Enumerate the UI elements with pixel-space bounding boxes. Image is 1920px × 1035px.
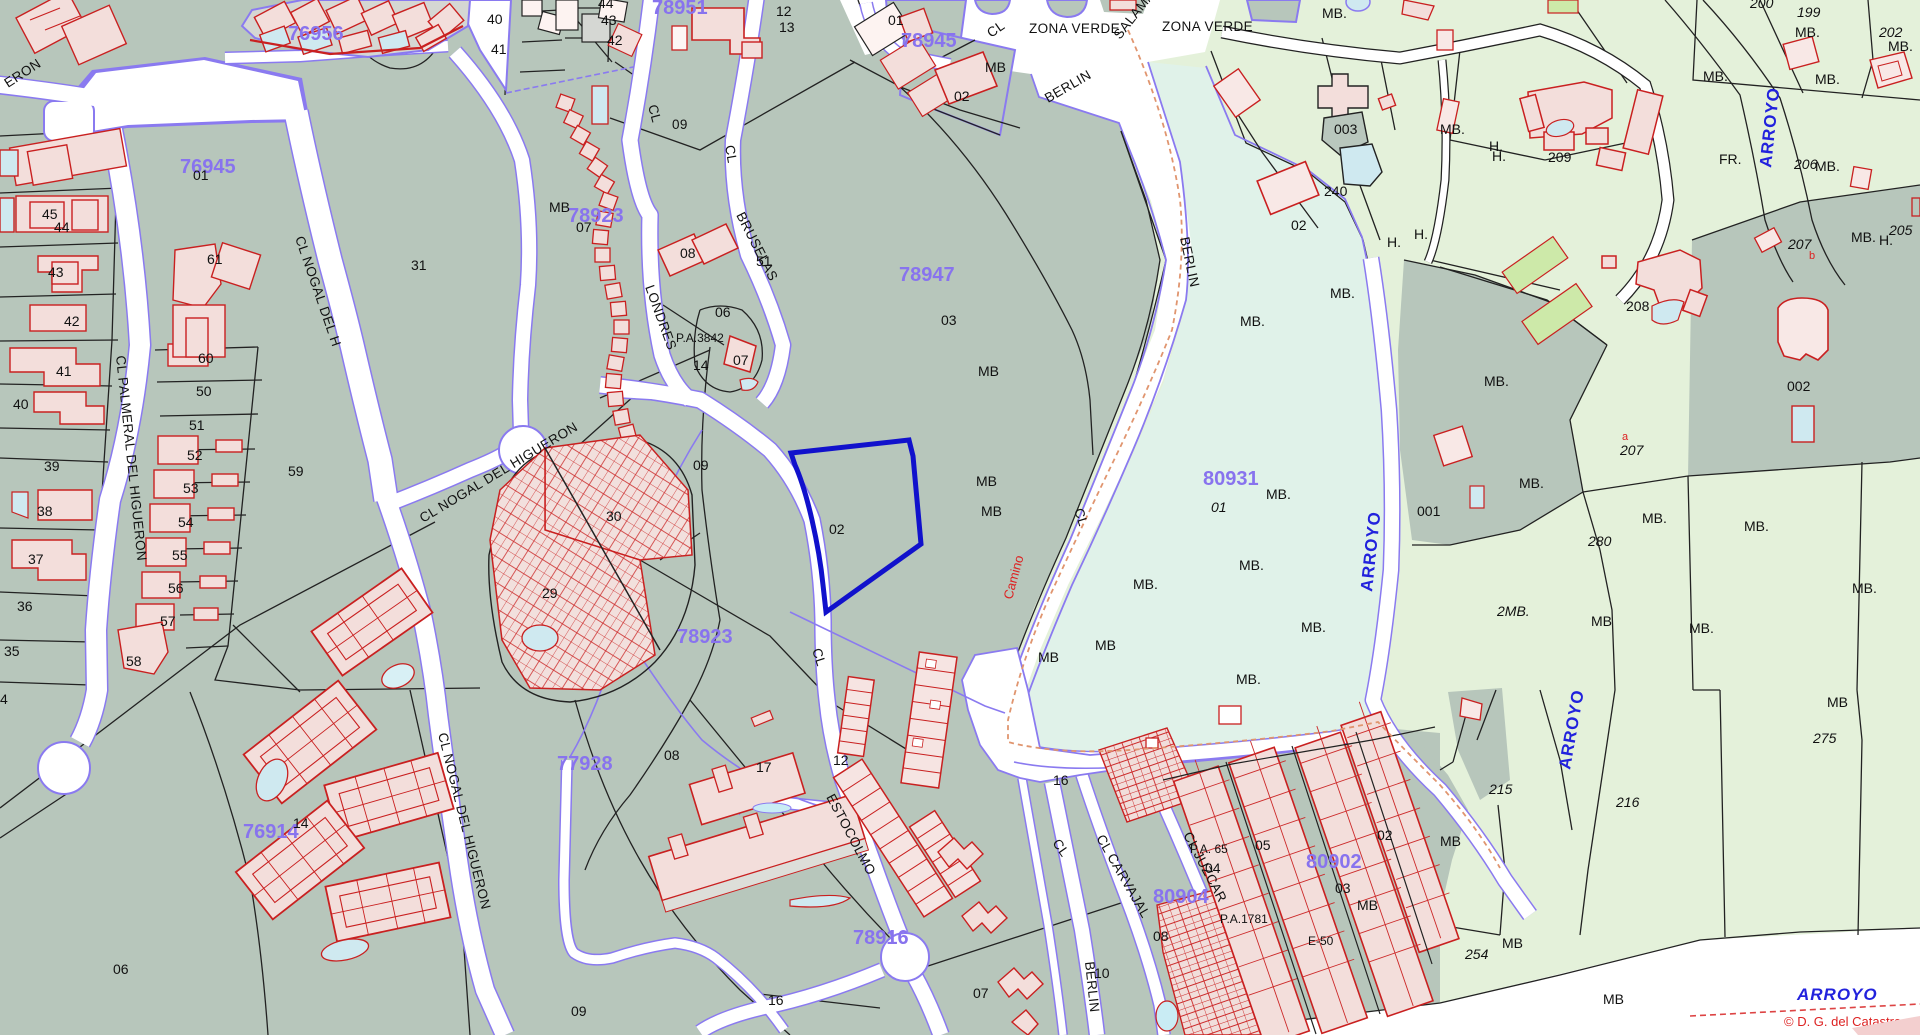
svg-text:MB.: MB. — [1851, 229, 1876, 245]
svg-text:ZONA VERDE: ZONA VERDE — [1162, 19, 1253, 34]
svg-text:MB: MB — [976, 473, 997, 489]
svg-text:FR.: FR. — [1719, 151, 1742, 167]
svg-text:MB.: MB. — [1301, 619, 1326, 635]
svg-text:59: 59 — [288, 463, 304, 479]
svg-text:05: 05 — [1255, 837, 1271, 853]
svg-text:44: 44 — [598, 0, 614, 11]
svg-text:54: 54 — [178, 514, 194, 530]
svg-text:MB.: MB. — [1266, 486, 1291, 502]
svg-text:09: 09 — [571, 1003, 587, 1019]
svg-text:MB.: MB. — [1744, 518, 1769, 534]
svg-text:76956: 76956 — [288, 23, 344, 45]
svg-text:ARROYO: ARROYO — [1796, 985, 1878, 1004]
svg-text:H.: H. — [1492, 148, 1506, 164]
svg-text:003: 003 — [1334, 121, 1358, 137]
svg-text:09: 09 — [672, 117, 688, 132]
svg-text:57: 57 — [160, 613, 176, 629]
svg-text:MB: MB — [1591, 613, 1612, 629]
svg-text:41: 41 — [491, 41, 507, 57]
svg-text:31: 31 — [411, 257, 427, 273]
svg-text:MB.: MB. — [1236, 671, 1261, 687]
svg-text:16: 16 — [768, 992, 784, 1008]
svg-text:12: 12 — [833, 752, 849, 768]
svg-text:55: 55 — [172, 547, 188, 563]
svg-text:14: 14 — [293, 815, 309, 831]
svg-text:07: 07 — [733, 352, 749, 368]
svg-text:001: 001 — [1417, 503, 1441, 519]
svg-text:MB.: MB. — [1484, 373, 1509, 389]
svg-text:MB: MB — [1038, 649, 1059, 665]
svg-text:43: 43 — [48, 264, 64, 280]
svg-text:199: 199 — [1797, 4, 1821, 20]
svg-text:78945: 78945 — [901, 30, 957, 52]
svg-text:H.: H. — [1387, 234, 1401, 250]
svg-text:50: 50 — [196, 383, 212, 399]
svg-text:08: 08 — [1153, 928, 1169, 944]
svg-text:4: 4 — [0, 691, 8, 707]
svg-text:215: 215 — [1488, 781, 1513, 797]
svg-text:16: 16 — [1053, 772, 1069, 788]
svg-text:51: 51 — [756, 253, 772, 269]
svg-text:80904: 80904 — [1153, 886, 1209, 908]
svg-text:MB: MB — [1502, 935, 1523, 951]
svg-text:60: 60 — [198, 350, 214, 366]
svg-text:08: 08 — [664, 747, 680, 763]
svg-text:02: 02 — [829, 521, 845, 537]
svg-text:06: 06 — [113, 961, 129, 977]
svg-text:51: 51 — [189, 417, 205, 433]
svg-text:39: 39 — [44, 458, 60, 474]
svg-text:41: 41 — [56, 363, 72, 379]
svg-text:MB.: MB. — [1330, 285, 1355, 301]
svg-text:44: 44 — [54, 219, 70, 235]
svg-text:H.: H. — [1879, 232, 1893, 248]
svg-text:MB.: MB. — [1815, 158, 1840, 174]
svg-text:80931: 80931 — [1203, 468, 1259, 490]
svg-text:MB.: MB. — [1240, 313, 1265, 329]
svg-text:10: 10 — [1094, 965, 1110, 981]
svg-text:43: 43 — [601, 12, 617, 28]
svg-text:MB: MB — [978, 363, 999, 379]
svg-text:52: 52 — [187, 447, 203, 463]
svg-text:H.: H. — [1414, 226, 1428, 242]
svg-text:MB.: MB. — [1519, 475, 1544, 491]
svg-text:MB.: MB. — [1642, 510, 1667, 526]
svg-text:01: 01 — [193, 167, 209, 183]
svg-text:08: 08 — [680, 245, 696, 261]
svg-text:30: 30 — [606, 508, 622, 524]
svg-text:MB: MB — [981, 503, 1002, 519]
svg-text:04: 04 — [1205, 860, 1221, 876]
svg-text:E-50: E-50 — [1308, 934, 1334, 948]
svg-text:MB.: MB. — [1815, 71, 1840, 87]
svg-text:42: 42 — [607, 32, 623, 48]
svg-text:35: 35 — [4, 643, 20, 659]
svg-text:36: 36 — [17, 598, 33, 614]
svg-text:09: 09 — [693, 457, 709, 473]
svg-text:02: 02 — [954, 88, 970, 104]
svg-text:58: 58 — [126, 653, 142, 669]
svg-text:002: 002 — [1787, 378, 1811, 394]
svg-text:216: 216 — [1615, 794, 1640, 810]
svg-text:02: 02 — [1291, 217, 1307, 233]
svg-text:280: 280 — [1587, 533, 1612, 549]
svg-text:07: 07 — [576, 219, 592, 235]
svg-text:61: 61 — [207, 251, 223, 267]
svg-text:78947: 78947 — [899, 264, 955, 286]
svg-text:01: 01 — [1211, 499, 1227, 515]
svg-text:40: 40 — [13, 396, 29, 412]
svg-text:2MB.: 2MB. — [1496, 603, 1530, 619]
svg-text:275: 275 — [1812, 730, 1837, 746]
svg-text:78951: 78951 — [652, 0, 708, 19]
svg-text:MB.: MB. — [1689, 620, 1714, 636]
svg-text:P.A. 65: P.A. 65 — [1190, 842, 1228, 856]
svg-text:206: 206 — [1793, 156, 1818, 172]
svg-text:MB: MB — [985, 59, 1006, 75]
svg-text:17: 17 — [756, 759, 772, 775]
svg-text:02: 02 — [1377, 827, 1393, 843]
svg-text:200: 200 — [1749, 0, 1774, 11]
svg-text:14: 14 — [693, 357, 709, 373]
svg-text:MB.: MB. — [1133, 576, 1158, 592]
svg-text:MB: MB — [1827, 694, 1848, 710]
svg-text:MB: MB — [1095, 637, 1116, 653]
svg-text:ZONA VERDE: ZONA VERDE — [1029, 21, 1120, 36]
svg-text:53: 53 — [183, 480, 199, 496]
svg-text:78923: 78923 — [677, 626, 733, 648]
svg-text:MB: MB — [1357, 897, 1378, 913]
svg-text:37: 37 — [28, 551, 44, 567]
svg-text:12: 12 — [776, 3, 792, 19]
svg-text:MB.: MB. — [1852, 580, 1877, 596]
svg-text:MB: MB — [1440, 833, 1461, 849]
svg-text:78916: 78916 — [853, 927, 909, 949]
svg-text:MB: MB — [1603, 991, 1624, 1007]
svg-text:207: 207 — [1619, 442, 1645, 458]
svg-text:76914: 76914 — [243, 821, 299, 843]
svg-text:MB.: MB. — [1795, 24, 1820, 40]
svg-text:80902: 80902 — [1306, 851, 1362, 873]
svg-text:P.A.3842: P.A.3842 — [676, 331, 724, 345]
svg-text:209: 209 — [1548, 149, 1572, 165]
svg-text:MB.: MB. — [1703, 68, 1728, 84]
svg-text:01: 01 — [888, 12, 904, 28]
svg-text:208: 208 — [1626, 298, 1650, 314]
svg-text:CL: CL — [722, 144, 740, 164]
svg-text:13: 13 — [779, 19, 795, 35]
svg-text:b: b — [1809, 250, 1815, 262]
svg-text:77928: 77928 — [557, 753, 613, 775]
svg-text:07: 07 — [973, 985, 989, 1001]
svg-text:03: 03 — [1335, 880, 1351, 896]
svg-text:MB.: MB. — [1239, 557, 1264, 573]
svg-text:42: 42 — [64, 313, 80, 329]
svg-text:254: 254 — [1464, 946, 1489, 962]
svg-text:MB.: MB. — [1888, 38, 1913, 54]
svg-text:P.A.1781: P.A.1781 — [1220, 912, 1268, 926]
svg-text:29: 29 — [542, 585, 558, 601]
svg-text:06: 06 — [715, 304, 731, 320]
svg-text:MB.: MB. — [1440, 121, 1465, 137]
svg-text:03: 03 — [941, 312, 957, 328]
svg-text:240: 240 — [1324, 183, 1348, 199]
svg-text:40: 40 — [487, 11, 503, 27]
svg-text:a: a — [1622, 431, 1629, 443]
svg-text:38: 38 — [37, 503, 53, 519]
svg-text:MB.: MB. — [1322, 5, 1347, 21]
svg-text:56: 56 — [168, 580, 184, 596]
svg-text:MB: MB — [549, 199, 570, 215]
